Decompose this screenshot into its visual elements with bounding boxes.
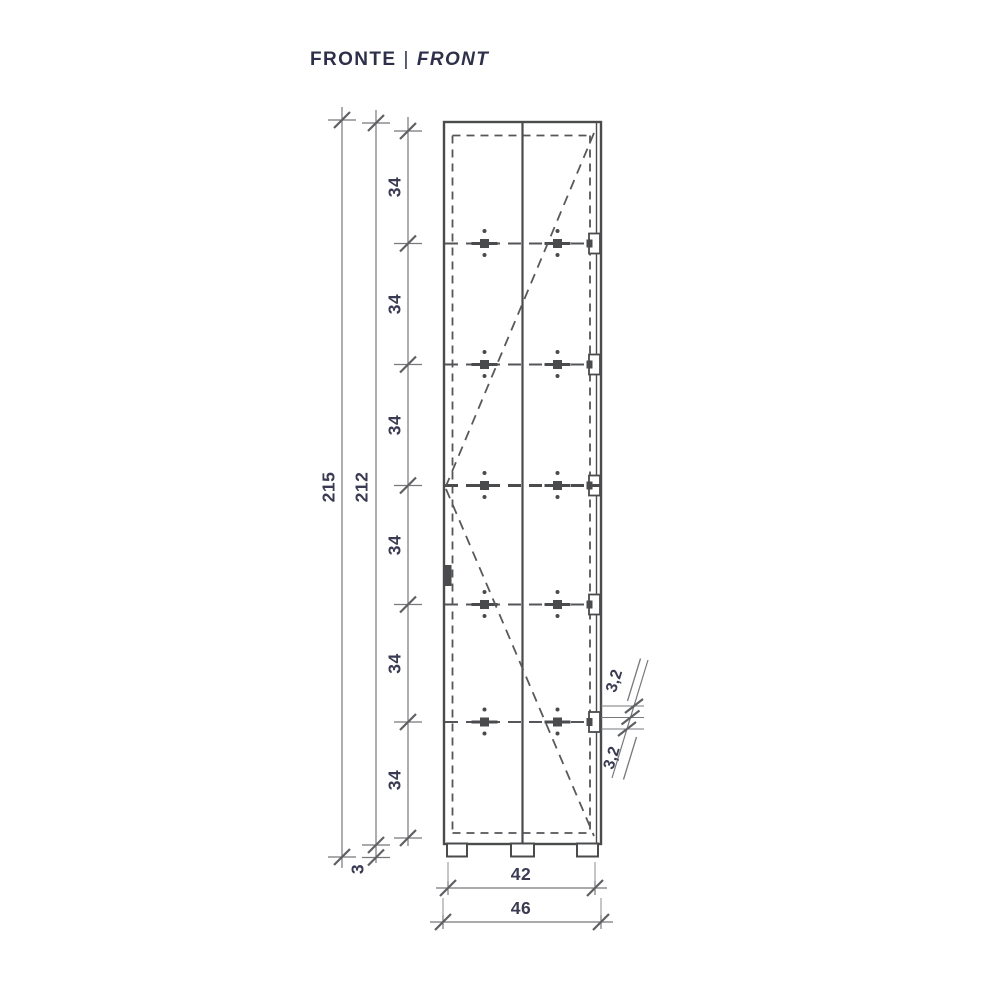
dim-body-height-label: 212: [352, 472, 372, 503]
dim-shelf-spacing-label-3: 34: [385, 415, 405, 435]
dim-inner-width-label: 42: [511, 864, 531, 884]
door-handle: [444, 565, 452, 586]
dim-thickness-top-label: 3,2: [603, 667, 626, 694]
dim-shelf-spacing-label-2: 34: [385, 294, 405, 314]
technical-drawing: 215 212 3 34 34 34 34 34 34: [0, 0, 1000, 1000]
dimension-body-height: 212 3: [348, 110, 390, 874]
dim-thickness-bottom-label: 3,2: [601, 744, 624, 771]
dim-total-height-label: 215: [319, 472, 339, 503]
dim-shelf-spacing-label-6: 34: [385, 770, 405, 790]
dim-shelf-spacing-label-1: 34: [385, 177, 405, 197]
dim-shelf-spacing-label-5: 34: [385, 653, 405, 673]
dim-outer-width-label: 46: [511, 898, 531, 918]
dim-shelf-spacing-label-4: 34: [385, 535, 405, 555]
dimension-total-height: 215: [319, 107, 356, 868]
foot-left: [447, 844, 467, 857]
dimension-panel-thickness: 3,2 3,2: [601, 659, 648, 780]
dim-base-height-label: 3: [348, 864, 368, 874]
feet: [447, 844, 598, 857]
dimension-shelf-spacings: 34 34 34 34 34 34: [385, 117, 422, 846]
cabinet-outline: [444, 122, 601, 844]
foot-right: [577, 844, 598, 857]
foot-center: [511, 844, 534, 857]
dimension-outer-width: 46: [430, 898, 613, 930]
drawing-sheet: FRONTE|FRONT: [0, 0, 1000, 1000]
dimension-inner-width: 42: [436, 862, 607, 896]
